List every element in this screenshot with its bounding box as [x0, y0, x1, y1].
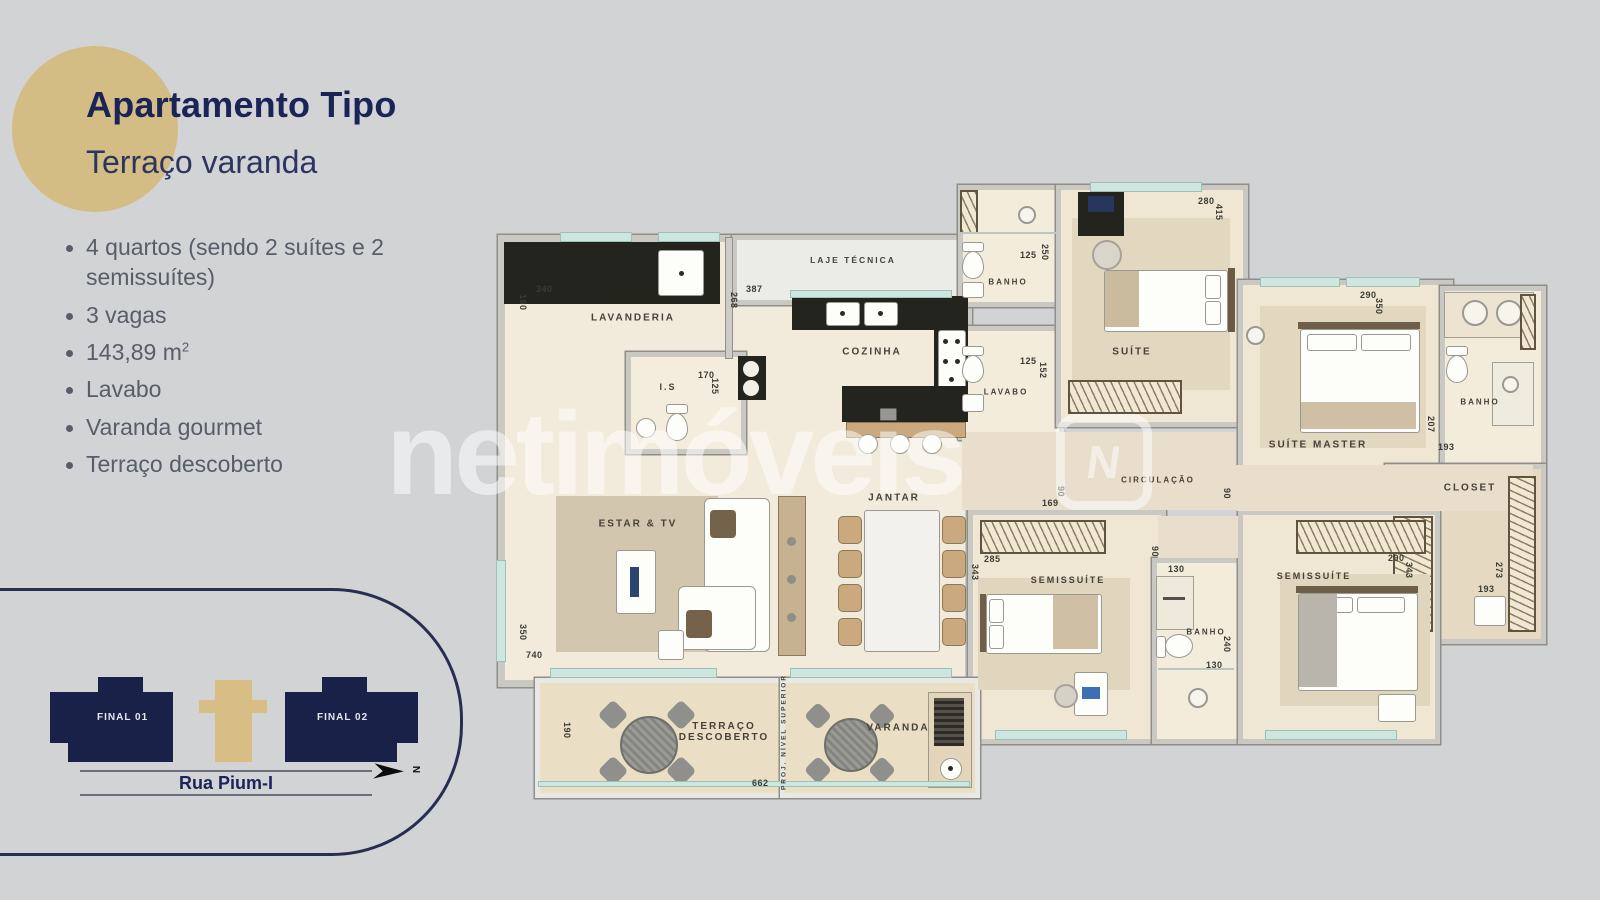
street-name: Rua Pium-I [80, 773, 372, 794]
window [496, 560, 506, 662]
feature-item: 143,89 m2 [62, 337, 398, 367]
page-title: Apartamento Tipo [86, 84, 397, 126]
dimension-label: 740 [526, 650, 543, 660]
dimension-label: 152 [1038, 362, 1048, 379]
watermark-text: netimóveis [386, 386, 962, 522]
dimension-label: 415 [1214, 204, 1224, 221]
feature-item: 4 quartos (sendo 2 suítes e 2 semissuíte… [62, 232, 398, 293]
dimension-label: 387 [746, 284, 763, 294]
window [1090, 182, 1202, 192]
building-core-arm-right [252, 700, 267, 713]
semi2-bed [1298, 593, 1418, 691]
room-label-semissuite-1: SEMISSUÍTE [1031, 575, 1106, 585]
north-label: N [410, 766, 421, 773]
master-bed [1300, 329, 1420, 433]
stove [938, 330, 966, 392]
dimension-label: 343 [970, 564, 980, 581]
feature-item: Lavabo [62, 374, 398, 404]
window [1346, 277, 1420, 287]
tv-panel [616, 550, 656, 614]
dimension-label: 90 [1150, 546, 1160, 557]
building-wing-left-bottom [68, 741, 173, 762]
building-footprint: FINAL 01 FINAL 02 [45, 672, 425, 772]
room-label-closet: CLOSET [1444, 483, 1497, 494]
room-label-lavabo: LAVABO [984, 388, 1029, 397]
kitchen-sink-2 [864, 302, 898, 326]
watermark-logo-letter: N [1084, 435, 1125, 489]
banho2-toilet [1165, 634, 1193, 658]
dimension-label: 193 [1478, 584, 1495, 594]
kitchen-sink-1 [826, 302, 860, 326]
semi2-bed-headboard [1296, 586, 1418, 593]
dimension-label: 125 [1020, 250, 1037, 260]
dimension-label: 130 [1206, 660, 1223, 670]
building-core-arm-left [199, 700, 215, 713]
terrace-door [550, 668, 717, 678]
dimension-label: 662 [752, 778, 769, 788]
dimension-label: 160 [518, 294, 528, 311]
dimension-label: 273 [1494, 562, 1504, 579]
suite-bed-headboard [1228, 268, 1235, 332]
dimension-label: 130 [1168, 564, 1185, 574]
page-subtitle: Terraço varanda [86, 144, 317, 181]
banho1-toilet [962, 251, 984, 279]
grill-sink [940, 758, 962, 780]
dimension-label: 169 [1042, 498, 1059, 508]
dimension-label: 290 [1388, 553, 1405, 563]
semi1-bed [986, 594, 1102, 654]
room-label-banho-master: BANHO [1460, 398, 1499, 407]
varanda-door [790, 668, 952, 678]
window [560, 232, 632, 242]
building-core [215, 680, 252, 762]
side-table [658, 630, 684, 660]
master-nightstand-lamp [1246, 326, 1265, 345]
gold-accent-circle [12, 46, 178, 212]
room-label-terraco: TERRAÇO DESCOBERTO [679, 721, 769, 743]
street-line-top [80, 770, 372, 772]
suite-wardrobe [1068, 380, 1182, 414]
semi1-desk [1074, 672, 1108, 716]
banho2-shower-head [1188, 688, 1208, 708]
dimension-label: 268 [729, 292, 739, 309]
room-label-semissuite-2: SEMISSUÍTE [1277, 571, 1352, 581]
master-banho-hatch [1520, 294, 1536, 350]
master-basin-2 [1496, 300, 1522, 326]
window [1260, 277, 1340, 287]
dimension-label: 285 [984, 554, 1001, 564]
banho2-vanity [1156, 576, 1194, 630]
watermark-logo: N [1056, 414, 1152, 510]
corridor-floor-arm [1158, 516, 1238, 558]
dining-chair [838, 584, 862, 612]
master-shower [1492, 362, 1534, 426]
closet-wardrobe-right [1508, 476, 1536, 632]
dimension-label: 240 [1222, 636, 1232, 653]
dining-chair [838, 550, 862, 578]
master-bed-headboard [1298, 322, 1420, 329]
semi1-chair [1054, 684, 1078, 708]
street-line-bottom [80, 794, 372, 796]
feature-item: Varanda gourmet [62, 412, 398, 442]
window [1265, 730, 1397, 740]
dimension-label: 125 [1020, 356, 1037, 366]
banho1-shower-glass [960, 232, 1056, 234]
semi2-wardrobe [1296, 520, 1426, 554]
dimension-label: 350 [1374, 298, 1384, 315]
room-label-suite-master: SUÍTE MASTER [1269, 440, 1367, 451]
dimension-label: 190 [562, 722, 572, 739]
final-01-label: FINAL 01 [97, 712, 148, 723]
master-shower-head [1502, 376, 1519, 393]
semi1-wardrobe [980, 520, 1106, 554]
final-02-label: FINAL 02 [317, 712, 368, 723]
closet-ottoman [1474, 596, 1506, 626]
dimension-label: 193 [1438, 442, 1455, 452]
lavabo-toilet [962, 355, 984, 383]
dining-chair [942, 550, 966, 578]
dining-chair [942, 584, 966, 612]
semi2-ottoman [1378, 694, 1416, 722]
laundry-sink [658, 250, 704, 296]
building-wing-right-bottom [285, 741, 397, 762]
suite-bed [1104, 270, 1228, 332]
dimension-label: 207 [1426, 416, 1436, 433]
dimension-label: 350 [518, 624, 528, 641]
room-label-cozinha: COZINHA [842, 347, 902, 358]
suite-chair [1092, 240, 1122, 270]
room-label-banho-2: BANHO [1186, 628, 1225, 637]
room-label-lavanderia: LAVANDERIA [591, 313, 675, 324]
dining-chair [838, 618, 862, 646]
master-basin-1 [1462, 300, 1488, 326]
dining-chair [942, 618, 966, 646]
banho1-sink [962, 282, 984, 298]
sofa-cushion-2 [686, 610, 712, 638]
dimension-label: 280 [1198, 196, 1215, 206]
dimension-label: 340 [536, 284, 553, 294]
banho1-shower-head [1018, 206, 1036, 224]
lavabo-sink [962, 394, 984, 412]
banho1-door-hatch [960, 190, 978, 234]
room-label-varanda: VARANDA [866, 723, 929, 734]
dimension-label: 250 [1040, 244, 1050, 261]
banho2-shower-glass [1158, 668, 1234, 670]
room-label-laje-tecnica: LAJE TÉCNICA [810, 255, 896, 265]
window [995, 730, 1127, 740]
room-label-suite: SUÍTE [1112, 347, 1151, 358]
feature-item: Terraço descoberto [62, 449, 398, 479]
grill [934, 698, 964, 746]
master-toilet [1446, 355, 1468, 383]
suite-tv-unit [1078, 192, 1124, 236]
room-label-proj-nivel-superior: PROJ. NÍVEL SUPERIOR [781, 674, 788, 790]
feature-item: 3 vagas [62, 300, 398, 330]
page: { "header": { "title": "Apartamento Tipo… [0, 0, 1600, 900]
dimension-label: 343 [1404, 562, 1414, 579]
room-lavabo [958, 326, 1064, 440]
window [790, 290, 952, 298]
room-label-banho-1: BANHO [988, 278, 1027, 287]
dimension-label: 90 [1222, 488, 1232, 499]
window [658, 232, 720, 242]
dining-table [864, 510, 940, 652]
features-list: 4 quartos (sendo 2 suítes e 2 semissuíte… [62, 232, 398, 487]
